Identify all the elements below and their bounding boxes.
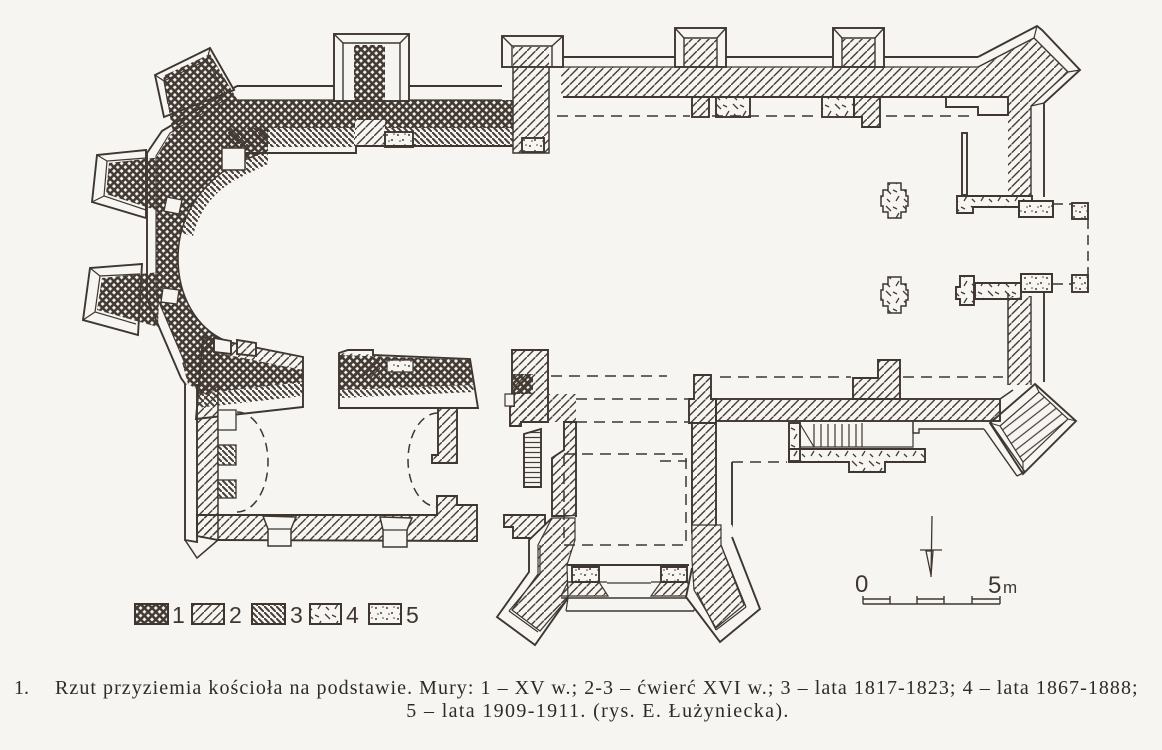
svg-text:Rzut przyziemia kościoła na po: Rzut przyziemia kościoła na podstawie. M… [55,677,1139,699]
svg-text:1.: 1. [14,677,29,699]
svg-text:1: 1 [172,602,185,628]
svg-text:5: 5 [406,602,419,628]
svg-text:4: 4 [346,602,359,628]
svg-text:3: 3 [290,602,303,628]
svg-text:5 – lata 1909-1911. (rys. E: 5 – lata 1909-1911. (rys. E. Łużyniecka)… [406,700,789,722]
svg-text:0: 0 [855,571,868,598]
svg-text:2: 2 [229,602,242,628]
svg-text:5: 5 [988,572,1001,599]
svg-text:m: m [1003,578,1017,597]
